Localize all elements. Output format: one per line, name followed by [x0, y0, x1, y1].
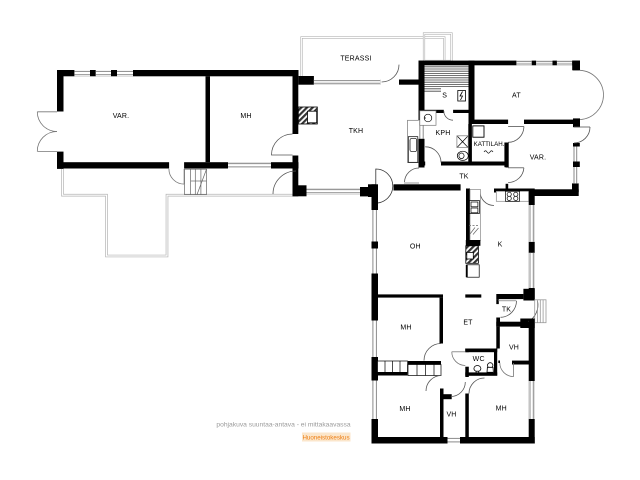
svg-text:TKH: TKH — [349, 128, 364, 135]
svg-text:MH: MH — [399, 406, 410, 413]
svg-text:OH: OH — [410, 244, 421, 251]
svg-text:TERASSI: TERASSI — [340, 56, 371, 63]
svg-text:K: K — [498, 242, 503, 249]
svg-text:S: S — [442, 92, 447, 99]
svg-text:MH: MH — [240, 113, 251, 120]
svg-text:AT: AT — [512, 92, 521, 99]
svg-text:VH: VH — [509, 345, 519, 352]
svg-text:pohjakuva suuntaa-antava - ei: pohjakuva suuntaa-antava - ei mittakaava… — [216, 422, 350, 429]
svg-text:TK: TK — [502, 307, 511, 314]
svg-text:ET: ET — [463, 320, 473, 327]
svg-text:KPH: KPH — [436, 130, 451, 137]
svg-text:VH: VH — [446, 412, 456, 419]
svg-text:Huoneistokeskus: Huoneistokeskus — [302, 434, 349, 441]
svg-text:VAR.: VAR. — [113, 113, 130, 120]
svg-text:MH: MH — [496, 406, 507, 413]
svg-text:KATTILAH.: KATTILAH. — [474, 141, 505, 148]
svg-text:TK: TK — [459, 174, 468, 181]
svg-text:VAR.: VAR. — [530, 155, 547, 162]
svg-text:WC: WC — [473, 356, 485, 363]
svg-text:MH: MH — [400, 325, 411, 332]
